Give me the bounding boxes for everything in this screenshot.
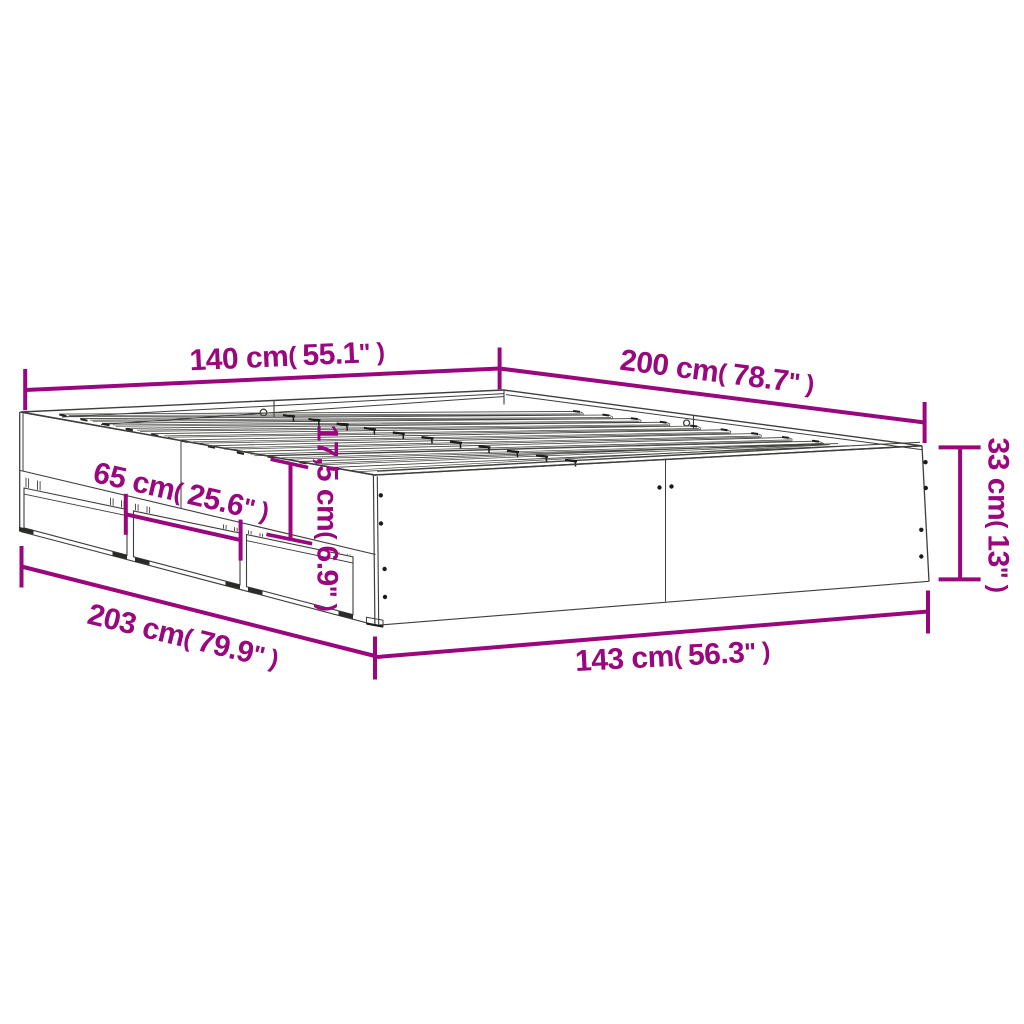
svg-text:33 cm( 13" ): 33 cm( 13" ) (981, 438, 1014, 593)
svg-text:17,5 cm( 6.9" ): 17,5 cm( 6.9" ) (311, 425, 344, 612)
